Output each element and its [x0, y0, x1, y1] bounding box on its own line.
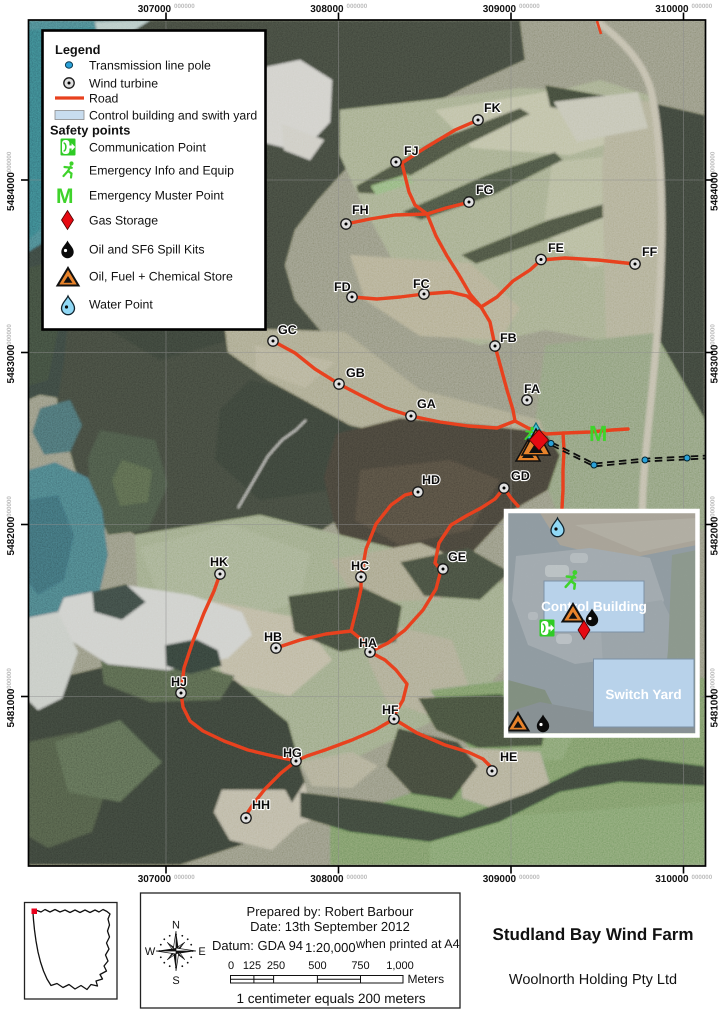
svg-text:FA: FA	[524, 382, 540, 396]
svg-text:FD: FD	[334, 280, 351, 294]
svg-text:W: W	[145, 946, 156, 958]
svg-text:Oil, Fuel + Chemical Store: Oil, Fuel + Chemical Store	[89, 270, 233, 284]
svg-text:GA: GA	[417, 397, 436, 411]
svg-text:309000: 309000	[483, 874, 517, 885]
svg-text:M: M	[589, 421, 607, 446]
svg-text:HF: HF	[382, 703, 399, 717]
svg-text:HB: HB	[264, 630, 282, 644]
svg-text:HC: HC	[351, 559, 369, 573]
svg-text:0: 0	[228, 960, 234, 972]
svg-text:HJ: HJ	[171, 675, 187, 689]
svg-text:HD: HD	[422, 473, 440, 487]
svg-text:5482000: 5482000	[6, 516, 17, 555]
svg-text:GC: GC	[278, 323, 297, 337]
svg-text:750: 750	[351, 960, 369, 972]
svg-text:Road: Road	[89, 92, 119, 106]
svg-text:000000: 000000	[174, 874, 195, 881]
svg-text:GB: GB	[346, 366, 365, 380]
svg-text:Meters: Meters	[408, 972, 445, 986]
svg-text:5483000: 5483000	[710, 344, 721, 383]
svg-text:S: S	[172, 975, 179, 987]
svg-text:000000: 000000	[6, 151, 13, 172]
svg-text:Wind turbine: Wind turbine	[89, 77, 158, 91]
svg-text:Control building and swith yar: Control building and swith yard	[89, 109, 257, 123]
svg-text:Communication Point: Communication Point	[89, 141, 206, 155]
svg-text:Datum: GDA 94: Datum: GDA 94	[212, 938, 303, 953]
svg-text:1 centimeter equals 200 meters: 1 centimeter equals 200 meters	[236, 991, 425, 1006]
svg-text:000000: 000000	[174, 3, 195, 10]
svg-text:5484000: 5484000	[6, 172, 17, 211]
svg-text:Switch Yard: Switch Yard	[605, 687, 681, 702]
svg-text:Emergency Muster Point: Emergency Muster Point	[89, 189, 224, 203]
svg-text:000000: 000000	[692, 874, 713, 881]
svg-text:000000: 000000	[347, 874, 368, 881]
svg-text:Gas Storage: Gas Storage	[89, 214, 158, 228]
svg-text:FH: FH	[352, 203, 369, 217]
svg-text:250: 250	[267, 960, 285, 972]
svg-text:000000: 000000	[710, 496, 717, 517]
svg-text:Water Point: Water Point	[89, 298, 153, 312]
svg-text:HG: HG	[283, 746, 302, 760]
svg-text:1:20,000: 1:20,000	[305, 940, 356, 955]
svg-text:Safety points: Safety points	[50, 123, 130, 138]
svg-text:FB: FB	[500, 331, 517, 345]
svg-text:FG: FG	[476, 183, 493, 197]
svg-text:500: 500	[308, 960, 326, 972]
svg-text:000000: 000000	[519, 874, 540, 881]
svg-text:HA: HA	[359, 636, 377, 650]
svg-text:000000: 000000	[519, 3, 540, 10]
svg-text:Oil and SF6 Spill Kits: Oil and SF6 Spill Kits	[89, 243, 205, 257]
svg-text:Transmission line pole: Transmission line pole	[89, 59, 211, 73]
svg-text:5482000: 5482000	[710, 516, 721, 555]
svg-text:FJ: FJ	[404, 144, 419, 158]
svg-text:000000: 000000	[710, 324, 717, 345]
svg-text:HK: HK	[210, 555, 228, 569]
svg-text:Date: 13th September 2012: Date: 13th September 2012	[250, 919, 410, 934]
svg-text:000000: 000000	[692, 3, 713, 10]
svg-text:000000: 000000	[347, 3, 368, 10]
svg-text:E: E	[198, 946, 205, 958]
svg-text:Emergency Info and Equip: Emergency Info and Equip	[89, 164, 234, 178]
svg-text:308000: 308000	[310, 874, 344, 885]
svg-text:Prepared by: Robert Barbour: Prepared by: Robert Barbour	[247, 904, 415, 919]
svg-text:HE: HE	[500, 750, 517, 764]
svg-text:GD: GD	[511, 469, 530, 483]
svg-text:5481000: 5481000	[710, 688, 721, 727]
svg-text:307000: 307000	[138, 874, 172, 885]
svg-text:000000: 000000	[6, 668, 13, 689]
svg-text:FK: FK	[484, 101, 501, 115]
svg-text:Woolnorth Holding Pty Ltd: Woolnorth Holding Pty Ltd	[509, 972, 677, 988]
svg-text:5483000: 5483000	[6, 344, 17, 383]
svg-text:FF: FF	[642, 245, 658, 259]
svg-text:M: M	[56, 185, 74, 208]
svg-text:FE: FE	[548, 241, 564, 255]
svg-text:000000: 000000	[6, 496, 13, 517]
svg-text:125: 125	[243, 960, 261, 972]
svg-text:000000: 000000	[6, 324, 13, 345]
svg-text:1,000: 1,000	[386, 960, 414, 972]
svg-text:FC: FC	[413, 277, 430, 291]
svg-text:5484000: 5484000	[710, 172, 721, 211]
svg-text:Studland Bay Wind Farm: Studland Bay Wind Farm	[492, 925, 693, 944]
svg-text:000000: 000000	[710, 151, 717, 172]
svg-text:000000: 000000	[710, 668, 717, 689]
svg-text:HH: HH	[252, 798, 270, 812]
svg-text:N: N	[172, 920, 180, 932]
svg-text:Legend: Legend	[55, 42, 101, 57]
svg-text:310000: 310000	[655, 874, 689, 885]
svg-text:GE: GE	[448, 550, 466, 564]
svg-text:when printed at A4: when printed at A4	[355, 937, 460, 951]
svg-text:5481000: 5481000	[6, 688, 17, 727]
